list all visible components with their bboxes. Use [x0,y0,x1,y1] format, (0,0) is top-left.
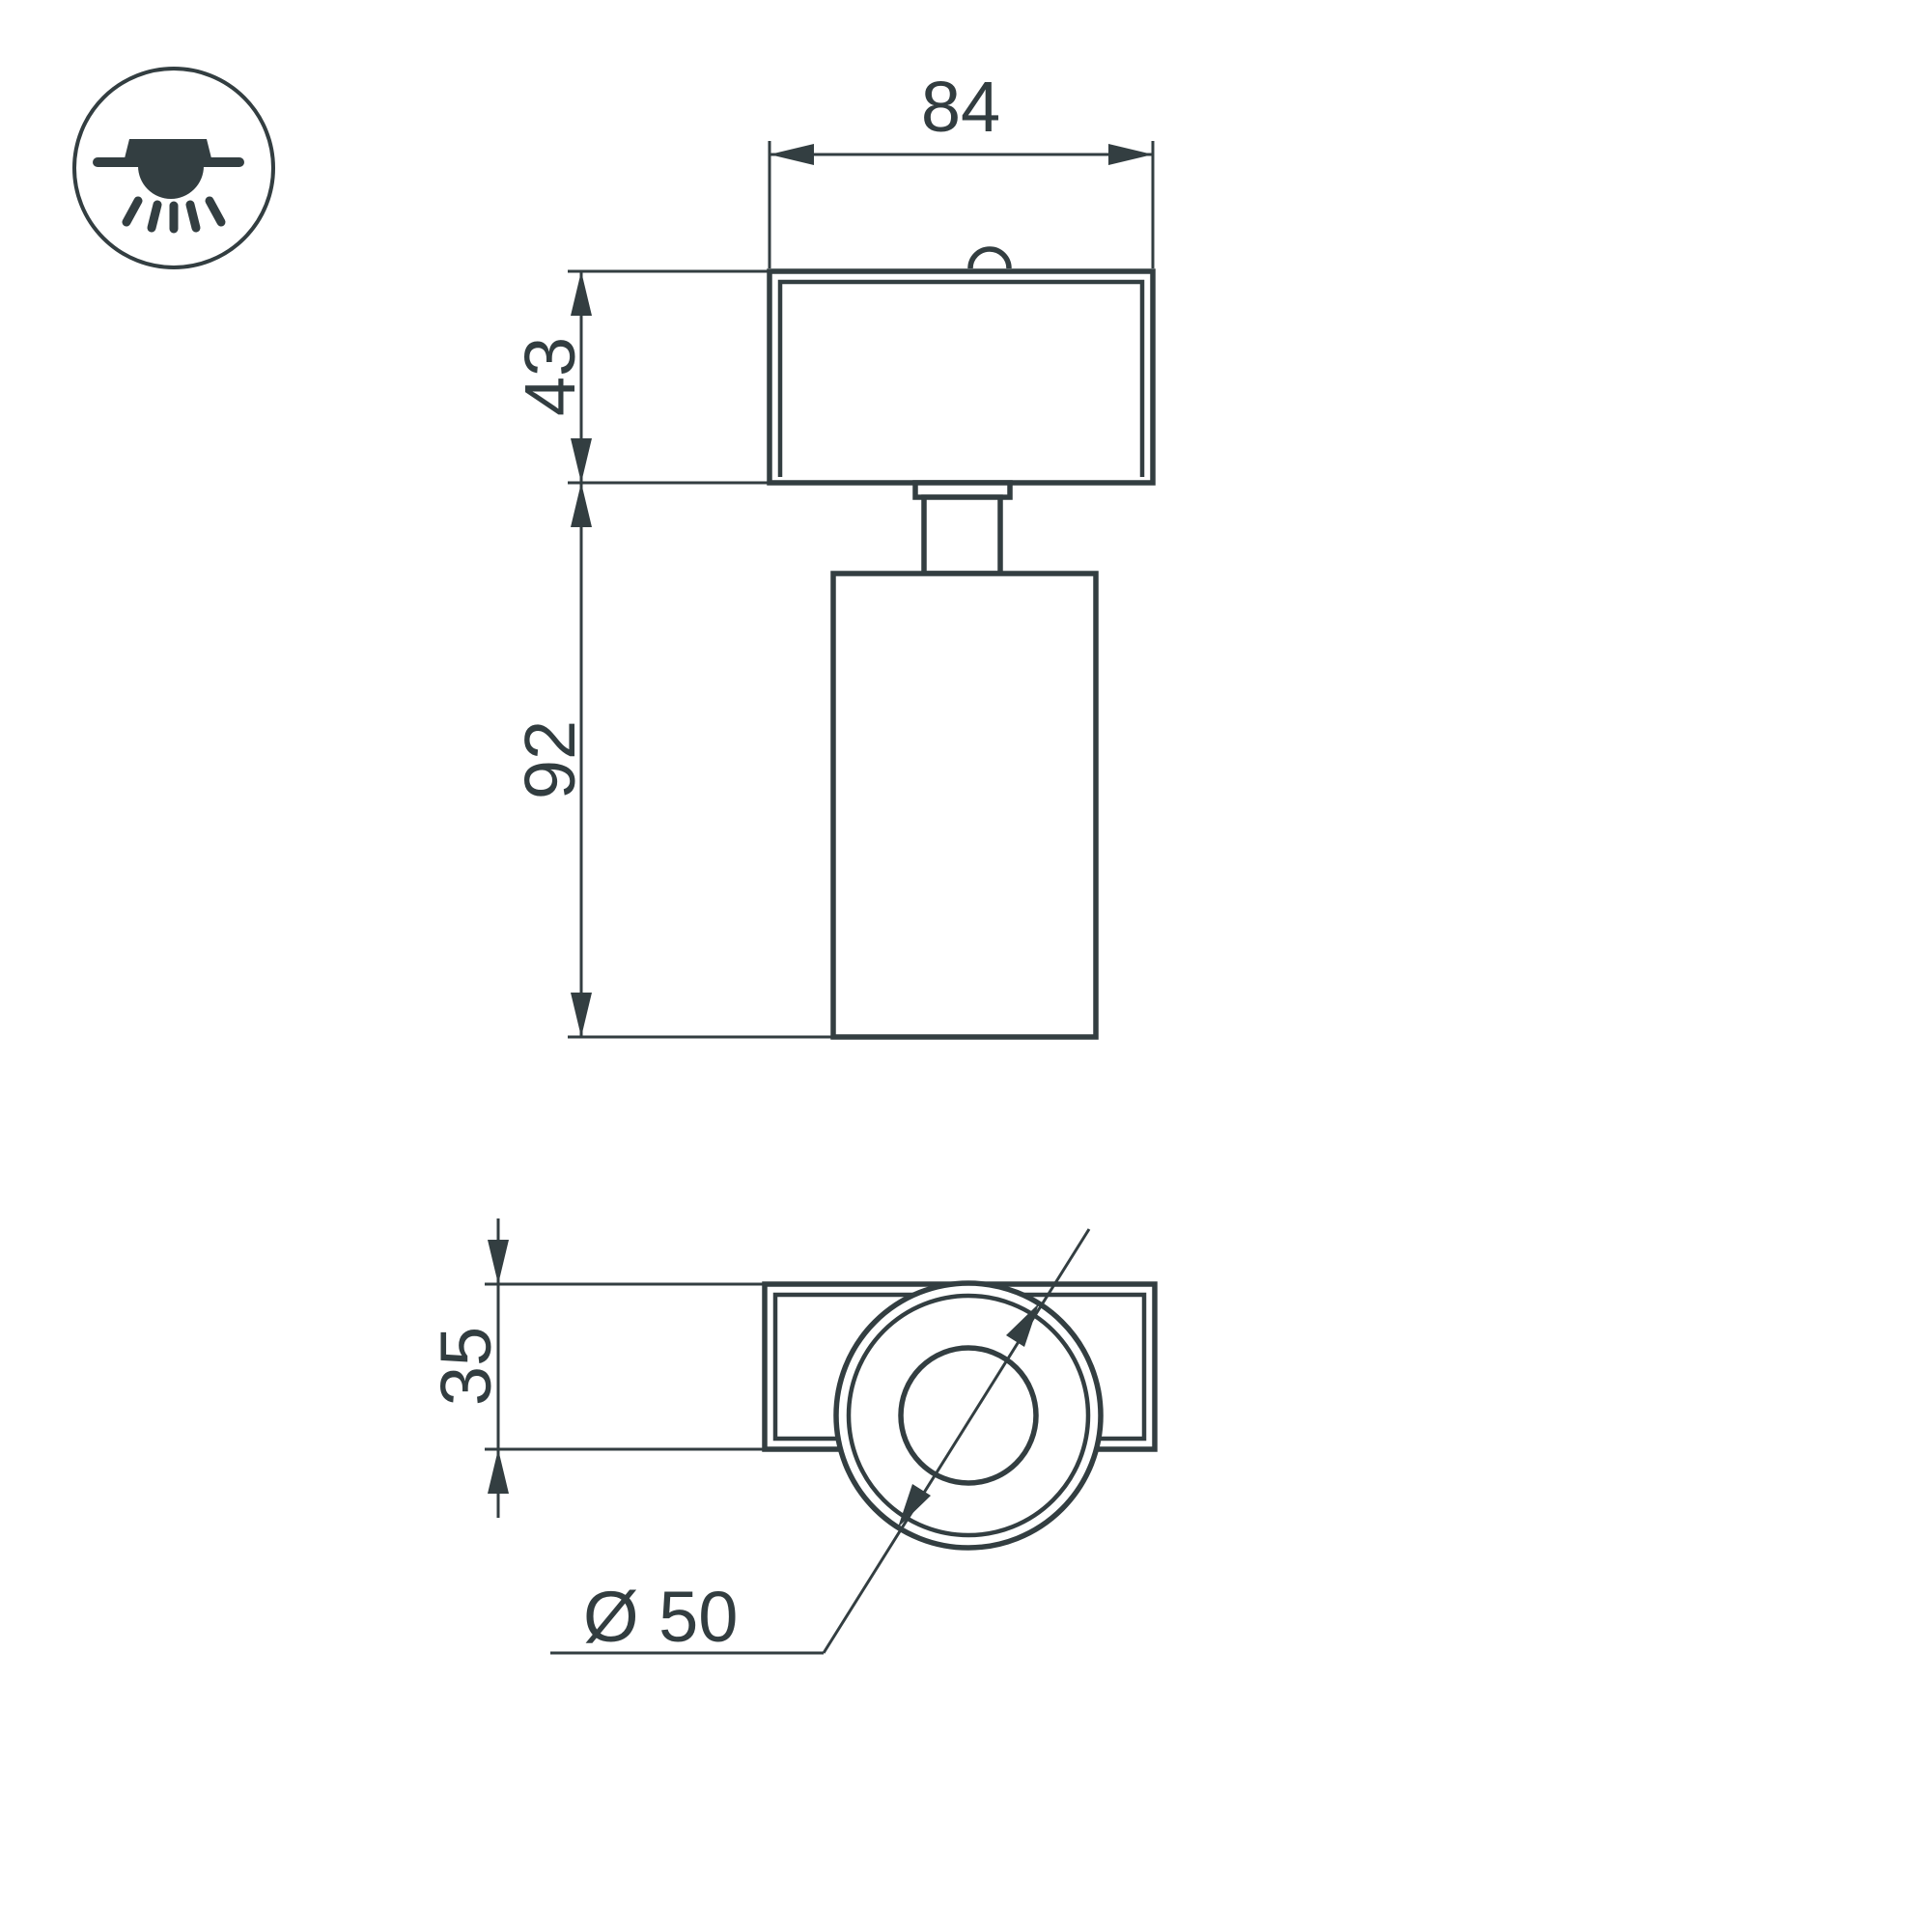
arrowhead-up [571,483,592,527]
arrowhead-down [488,1240,509,1284]
width-dimension: 84 [770,67,1153,268]
mount-type-icon [74,69,273,267]
body-height-dimension: 92 [510,483,835,1037]
arrowhead-up [571,271,592,316]
arrowhead-up [488,1449,509,1494]
dimension-value-depth: 35 [426,1327,506,1406]
icon-lamp-dome [138,166,204,199]
arrowhead-right [1108,144,1153,165]
arrowhead-down [571,438,592,483]
dimension-value-width: 84 [921,67,1000,147]
technical-drawing-page: 84 43 92 [0,0,1932,1932]
plan-view: 35 Ø 50 [426,1218,1155,1657]
housing-height-dimension: 43 [510,271,770,483]
joint-neck [924,497,1000,574]
hanging-loop [970,249,1009,268]
plan-body-outer-circle [836,1283,1101,1548]
technical-drawing-canvas: 84 43 92 [0,0,1932,1932]
housing-outline [770,271,1153,483]
dimension-value-housing-height: 43 [510,337,590,416]
arrowhead-left [770,144,814,165]
dimension-value-diameter: Ø 50 [583,1577,738,1657]
icon-light-rays [126,201,221,229]
dimension-value-body-height: 92 [510,720,590,799]
cylinder-body [833,574,1096,1037]
plan-housing [765,1283,1155,1548]
spot-body [833,483,1096,1037]
arrowhead-down [571,993,592,1037]
depth-dimension: 35 [426,1218,763,1518]
front-view: 84 43 92 [510,67,1153,1037]
housing-box [770,249,1153,483]
